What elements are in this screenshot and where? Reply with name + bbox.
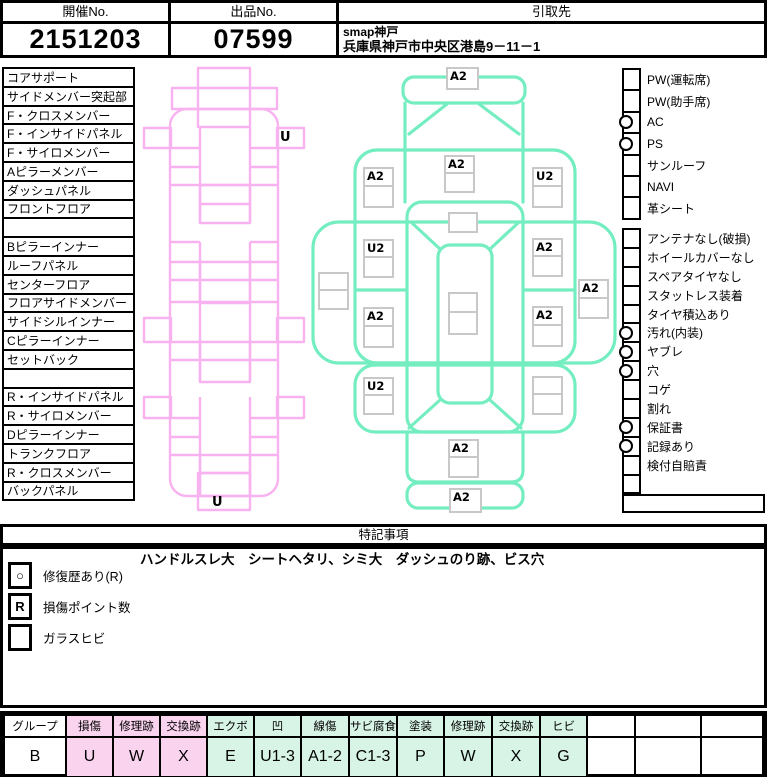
damage-marker-cowl <box>448 212 478 233</box>
part-row: フロントフロア <box>2 199 135 220</box>
remarks-note: ハンドルスレ大 シートヘタリ、シミ大 ダッシュのり跡、ビス穴 <box>140 548 544 568</box>
equipment-checkbox[interactable] <box>622 132 641 155</box>
condition-label: コゲ <box>647 379 671 400</box>
legend-symbol-box <box>8 624 32 651</box>
condition-row: アンテナなし(破損) <box>622 228 755 249</box>
legend-row: R 損傷ポイント数 <box>8 593 131 620</box>
equipment-row: PS <box>622 132 710 155</box>
part-row: Aピラーメンバー <box>2 161 135 182</box>
equipment-strip: PW(運転席) PW(助手席) AC PS サンルーフ NAVI 革シート <box>622 68 710 220</box>
check-circle-icon <box>619 420 633 434</box>
check-circle-icon <box>619 439 633 453</box>
condition-row: タイヤ積込あり <box>622 304 755 325</box>
damage-marker-left-rear-fender: U2 <box>363 377 394 415</box>
auction-no-value: 2151203 <box>3 24 168 55</box>
condition-checkbox[interactable] <box>622 379 641 400</box>
grade-value-cell: P <box>397 737 444 777</box>
damage-marker-right-side: A2 <box>578 279 609 319</box>
condition-label: 検付自賠責 <box>647 455 707 476</box>
condition-label: アンテナなし(破損) <box>647 228 751 249</box>
grade-header-cell <box>635 715 701 737</box>
part-row: R・クロスメンバー <box>2 462 135 483</box>
damage-code: A2 <box>582 281 599 295</box>
damage-marker-right-rear-fender <box>532 376 563 415</box>
grade-header-cell: 凹 <box>254 715 301 737</box>
damage-code: A2 <box>452 441 469 455</box>
damage-marker-left-side-sill <box>318 272 349 310</box>
part-row: セットバック <box>2 349 135 370</box>
grade-value-cell: X <box>492 737 540 777</box>
legend-symbol-box: ○ <box>8 562 32 589</box>
condition-checkbox[interactable] <box>622 322 641 343</box>
part-row: トランクフロア <box>2 443 135 464</box>
legend-row: ガラスヒビ <box>8 624 131 651</box>
condition-row: ホイールカバーなし <box>622 247 755 268</box>
auction-no-label: 開催No. <box>3 3 168 24</box>
part-row: センターフロア <box>2 274 135 295</box>
grade-value-cell: C1-3 <box>349 737 397 777</box>
equipment-checkbox[interactable] <box>622 89 641 112</box>
lot-no-value: 07599 <box>171 24 336 55</box>
part-row: ルーフパネル <box>2 255 135 276</box>
frame-damage-label: U <box>212 495 223 510</box>
grade-value-cell <box>587 737 635 777</box>
equipment-row: AC <box>622 111 710 134</box>
condition-checkbox[interactable] <box>622 285 641 306</box>
damage-marker-left-front-door: U2 <box>363 239 394 278</box>
check-circle-icon <box>619 115 633 129</box>
equipment-checkbox[interactable] <box>622 154 641 177</box>
legend-symbol-box: R <box>8 593 32 620</box>
damage-code: U2 <box>367 379 384 393</box>
condition-label: 記録あり <box>647 436 695 457</box>
part-row <box>2 217 135 238</box>
condition-checkbox[interactable] <box>622 417 641 438</box>
condition-row <box>622 474 755 495</box>
condition-row: スタットレス装着 <box>622 285 755 306</box>
part-row: サイドシルインナー <box>2 311 135 332</box>
damage-code: A2 <box>450 69 467 83</box>
damage-code: U2 <box>536 169 553 183</box>
part-row: F・サイロメンバー <box>2 142 135 163</box>
damage-marker-right-front-door: A2 <box>532 238 563 277</box>
equipment-checkbox[interactable] <box>622 68 641 91</box>
part-row: バックパネル <box>2 481 135 502</box>
condition-checkbox[interactable] <box>622 455 641 476</box>
part-row: R・サイロメンバー <box>2 405 135 426</box>
damage-code: A2 <box>367 309 384 323</box>
condition-row: 記録あり <box>622 436 755 457</box>
grade-value-cell: E <box>207 737 254 777</box>
equipment-label: 革シート <box>647 196 695 219</box>
condition-checkbox[interactable] <box>622 341 641 362</box>
part-row <box>2 368 135 389</box>
grade-value-cell <box>701 737 763 777</box>
condition-checkbox[interactable] <box>622 304 641 325</box>
auction-sheet: 開催No. 2151203 出品No. 07599 引取先 smap神戸 兵庫県… <box>0 0 770 777</box>
equipment-checkbox[interactable] <box>622 196 641 219</box>
equipment-label: PW(助手席) <box>647 89 710 112</box>
equipment-label: AC <box>647 111 664 134</box>
damage-code: A2 <box>536 308 553 322</box>
condition-checkbox[interactable] <box>622 266 641 287</box>
damage-code: U2 <box>367 241 384 255</box>
equipment-row: NAVI <box>622 175 710 198</box>
damage-marker-roof <box>448 292 478 335</box>
equipment-label: NAVI <box>647 175 674 198</box>
pickup-value: smap神戸 兵庫県神戸市中央区港島9－11－1 <box>339 24 764 55</box>
grade-value-cell: X <box>160 737 207 777</box>
lot-no-label: 出品No. <box>171 3 336 24</box>
equipment-row: サンルーフ <box>622 154 710 177</box>
equipment-row: PW(運転席) <box>622 68 710 91</box>
check-circle-icon <box>619 326 633 340</box>
damage-code: A2 <box>367 169 384 183</box>
legend-label: 損傷ポイント数 <box>43 597 131 616</box>
condition-label: ホイールカバーなし <box>647 247 755 268</box>
part-row: ダッシュパネル <box>2 180 135 201</box>
damage-marker-front-bumper: A2 <box>446 67 479 90</box>
condition-row: 検付自賠責 <box>622 455 755 476</box>
condition-row: コゲ <box>622 379 755 400</box>
condition-label: ヤブレ <box>647 341 683 362</box>
pickup-column: 引取先 smap神戸 兵庫県神戸市中央区港島9－11－1 <box>339 3 764 55</box>
remarks-legend: ○ 修復歴あり(R) R 損傷ポイント数 ガラスヒビ <box>8 562 131 655</box>
grade-header-cell: 塗装 <box>397 715 444 737</box>
condition-checkbox[interactable] <box>622 228 641 249</box>
damage-marker-rear-bumper: A2 <box>449 488 482 513</box>
damage-marker-right-rear-door: A2 <box>532 306 563 347</box>
equipment-checkbox[interactable] <box>622 111 641 134</box>
part-row: R・インサイドパネル <box>2 387 135 408</box>
part-row: Bピラーインナー <box>2 236 135 257</box>
grade-header-cell: 修理跡 <box>444 715 492 737</box>
auction-no-column: 開催No. 2151203 <box>3 3 171 55</box>
part-row: コアサポート <box>2 67 135 88</box>
condition-row: 割れ <box>622 398 755 419</box>
condition-label: 割れ <box>647 398 671 419</box>
grade-header-cell: サビ腐食 <box>349 715 397 737</box>
damage-marker-trunk: A2 <box>448 439 479 478</box>
condition-checkbox[interactable] <box>622 360 641 381</box>
condition-label: スペアタイヤなし <box>647 266 742 287</box>
condition-checkbox[interactable] <box>622 436 641 457</box>
condition-checkbox[interactable] <box>622 398 641 419</box>
grade-value-cell <box>635 737 701 777</box>
grade-header-cell <box>587 715 635 737</box>
part-row: フロアサイドメンバー <box>2 293 135 314</box>
part-row: Dピラーインナー <box>2 424 135 445</box>
equipment-row: 革シート <box>622 196 710 219</box>
equipment-label: サンルーフ <box>647 154 706 177</box>
damage-marker-front-right-fender: U2 <box>532 167 563 208</box>
equipment-row: PW(助手席) <box>622 89 710 112</box>
condition-checkbox[interactable] <box>622 247 641 268</box>
legend-row: ○ 修復歴あり(R) <box>8 562 131 589</box>
damage-marker-hood: A2 <box>444 155 475 193</box>
condition-row: 穴 <box>622 360 755 381</box>
part-row: サイドメンバー突起部 <box>2 86 135 107</box>
condition-label: タイヤ積込あり <box>647 304 731 325</box>
grade-value-cell: W <box>444 737 492 777</box>
header: 開催No. 2151203 出品No. 07599 引取先 smap神戸 兵庫県… <box>0 0 767 58</box>
equipment-label: PW(運転席) <box>647 68 710 91</box>
condition-label: 汚れ(内装) <box>647 322 703 343</box>
check-circle-icon <box>619 137 633 151</box>
condition-strip: アンテナなし(破損) ホイールカバーなし スペアタイヤなし スタットレス装着 タ… <box>622 228 755 494</box>
condition-label: 保証書 <box>647 417 683 438</box>
condition-label: スタットレス装着 <box>647 285 743 306</box>
damage-marker-left-rear-door: A2 <box>363 307 394 348</box>
pickup-address: 兵庫県神戸市中央区港島9－11－1 <box>343 39 764 54</box>
damage-code: A2 <box>453 490 470 504</box>
grade-header-cell: エクボ <box>207 715 254 737</box>
damage-marker-front-left-fender: A2 <box>363 167 394 208</box>
grade-header-cell: 交換跡 <box>492 715 540 737</box>
pickup-name: smap神戸 <box>343 25 764 39</box>
grade-value-cell: U1-3 <box>254 737 301 777</box>
pickup-label: 引取先 <box>339 3 764 24</box>
damage-code: A2 <box>448 157 465 171</box>
grade-value-cell: B <box>4 737 66 777</box>
condition-label: 穴 <box>647 360 659 381</box>
grade-header-cell: ヒビ <box>540 715 587 737</box>
part-row: Cピラーインナー <box>2 330 135 351</box>
frame-damage-label: U <box>280 130 291 145</box>
parts-list: コアサポート サイドメンバー突起部 F・クロスメンバー F・インサイドパネル F… <box>2 67 135 501</box>
grade-header-cell: 線傷 <box>301 715 349 737</box>
grade-header-cell: 交換跡 <box>160 715 207 737</box>
condition-row: 保証書 <box>622 417 755 438</box>
legend-label: 修復歴あり(R) <box>43 566 123 585</box>
condition-row: ヤブレ <box>622 341 755 362</box>
grade-value-cell: W <box>113 737 160 777</box>
grade-header-cell: 修理跡 <box>113 715 160 737</box>
condition-row: 汚れ(内装) <box>622 322 755 343</box>
grade-header-cell: グループ <box>4 715 66 737</box>
grade-header-cell <box>701 715 763 737</box>
condition-checkbox[interactable] <box>622 474 641 495</box>
grade-value-cell: A1-2 <box>301 737 349 777</box>
part-row: F・クロスメンバー <box>2 105 135 126</box>
grade-header-cell: 損傷 <box>66 715 113 737</box>
grade-table: グループ 損傷 修理跡 交換跡 エクボ 凹 線傷 サビ腐食 塗装 修理跡 交換跡… <box>0 711 767 777</box>
damage-code: A2 <box>536 240 553 254</box>
check-circle-icon <box>619 364 633 378</box>
grade-value-cell: U <box>66 737 113 777</box>
memo-box <box>622 494 765 513</box>
grade-value-cell: G <box>540 737 587 777</box>
check-circle-icon <box>619 345 633 359</box>
condition-row: スペアタイヤなし <box>622 266 755 287</box>
part-row: F・インサイドパネル <box>2 123 135 144</box>
equipment-checkbox[interactable] <box>622 175 641 198</box>
legend-label: ガラスヒビ <box>43 628 105 647</box>
equipment-label: PS <box>647 132 663 155</box>
remarks-title: 特記事項 <box>0 524 767 546</box>
lot-no-column: 出品No. 07599 <box>171 3 339 55</box>
